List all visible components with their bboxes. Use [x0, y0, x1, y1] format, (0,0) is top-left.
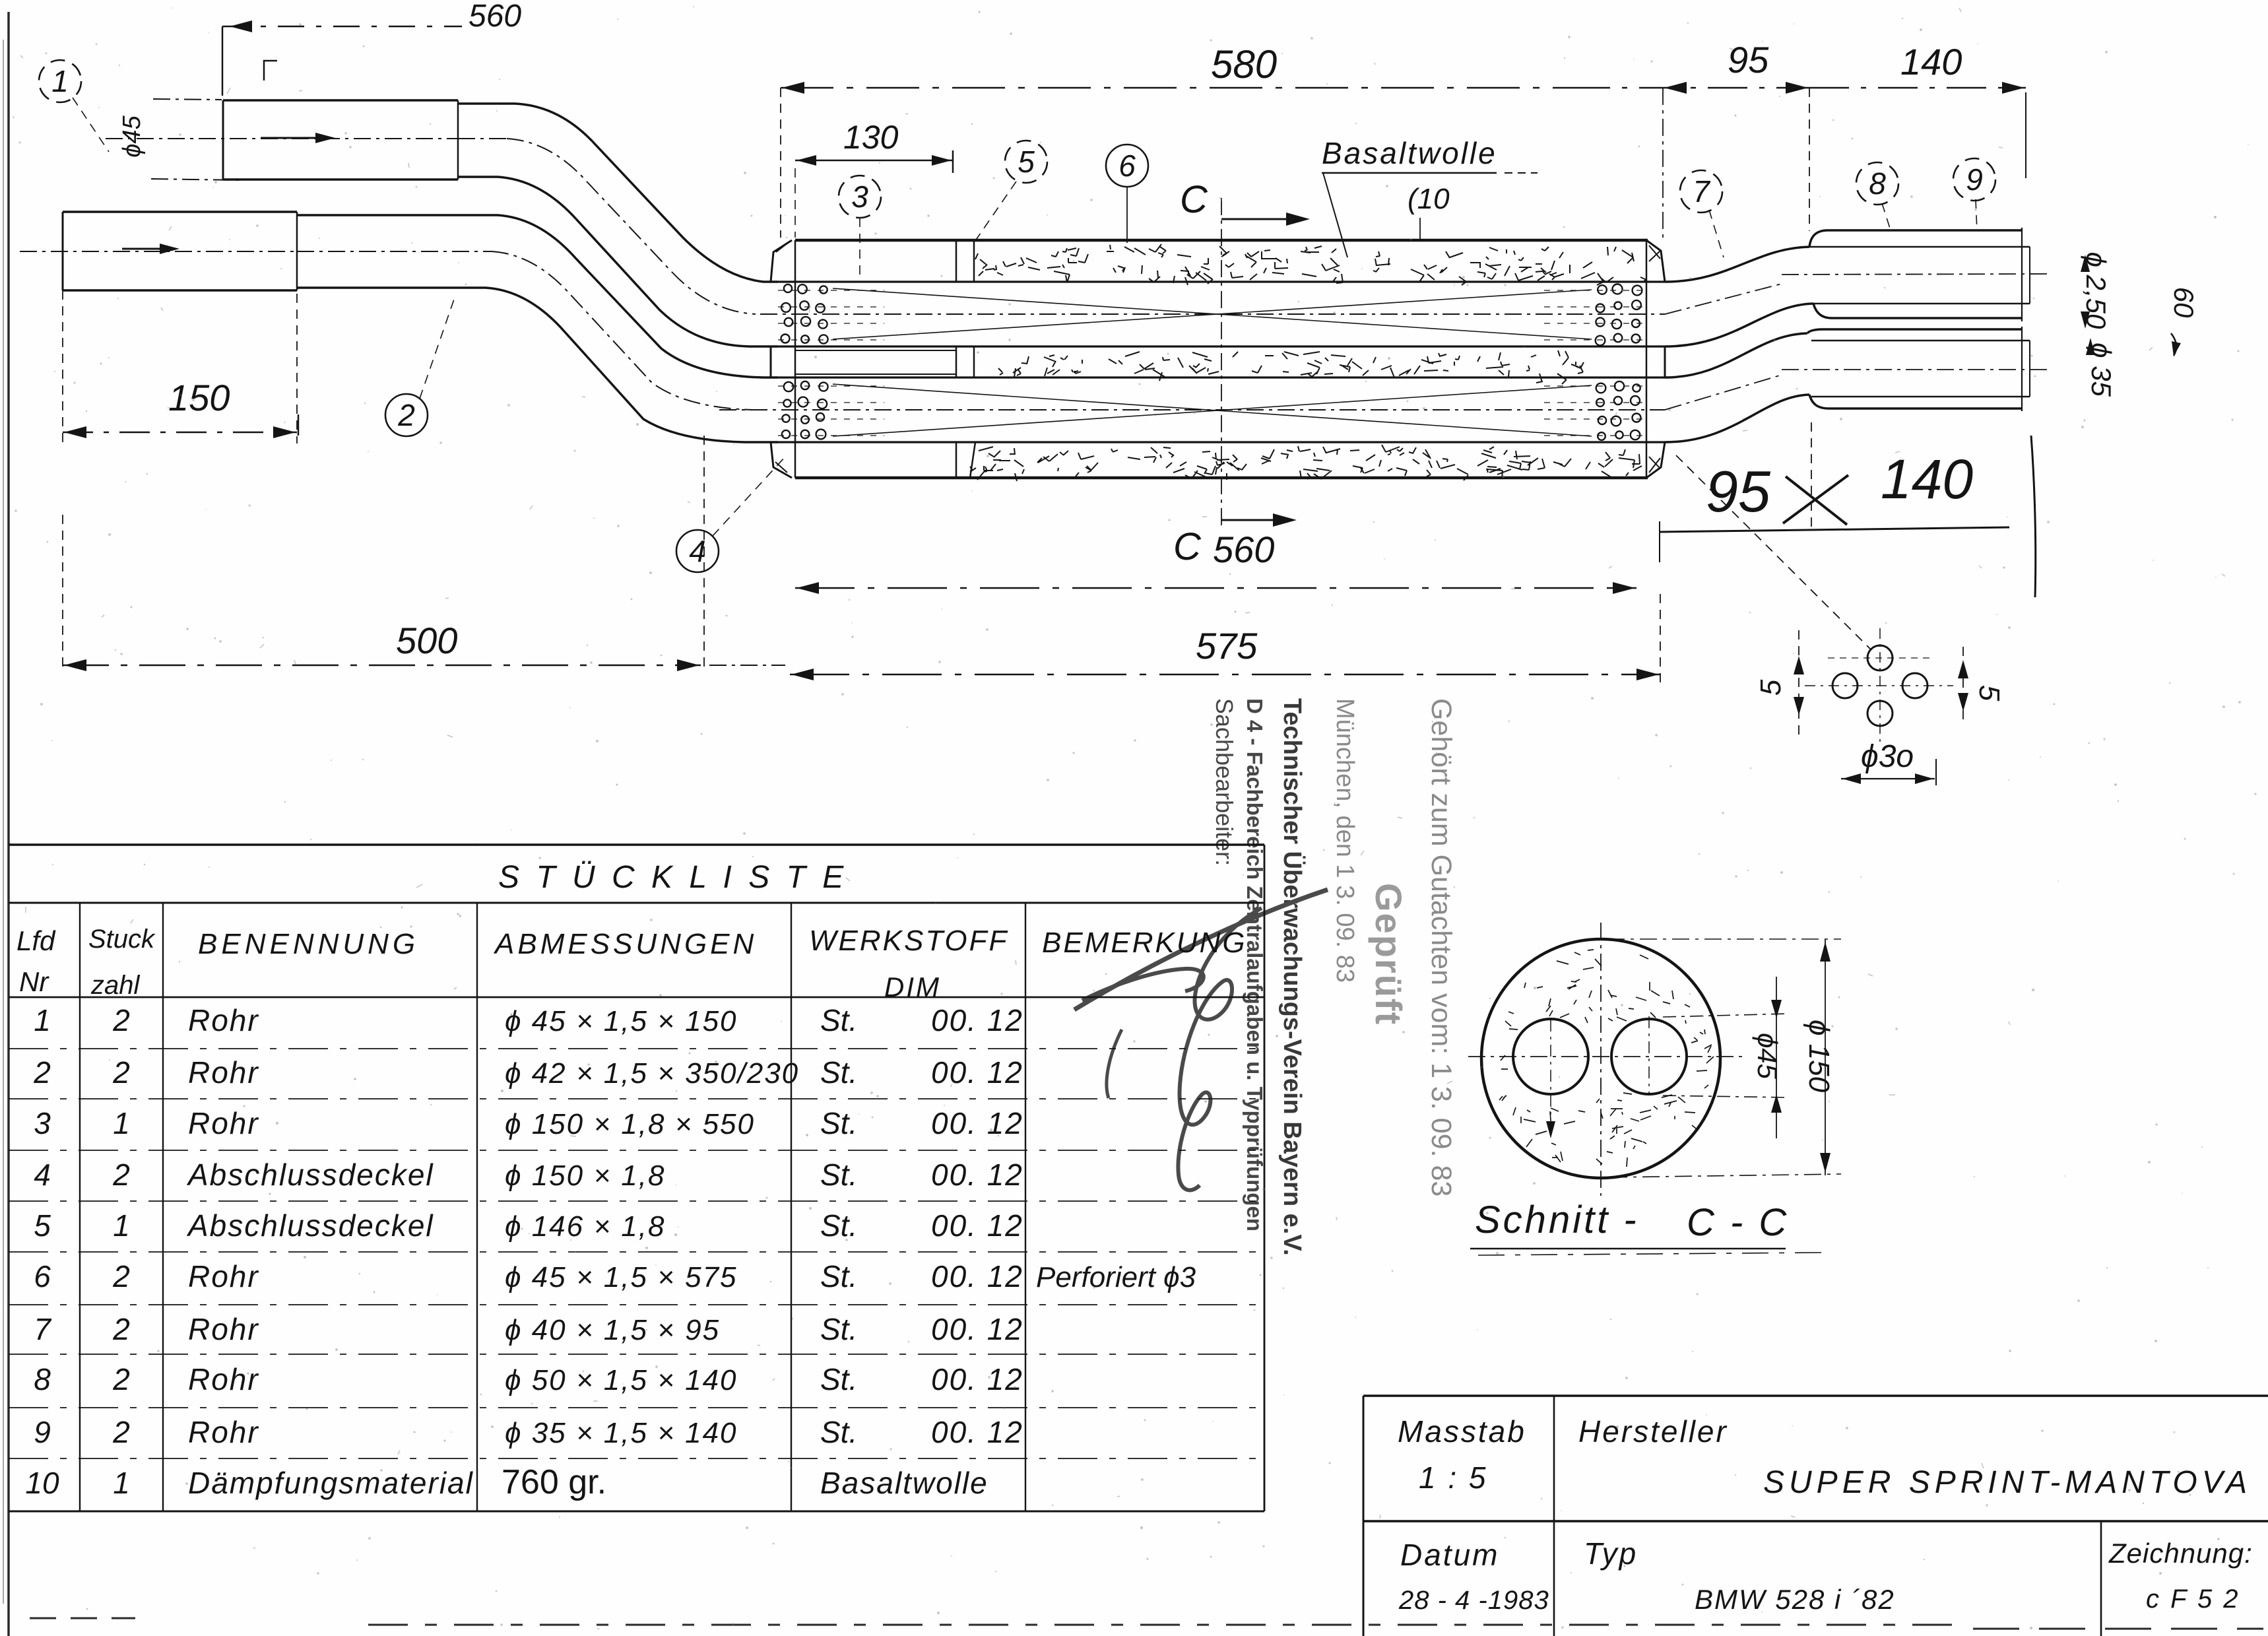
svg-text:00. 12: 00. 12 — [931, 1312, 1023, 1346]
svg-text:c F 5 2: c F 5 2 — [2146, 1585, 2240, 1614]
svg-text:St.: St. — [820, 1312, 857, 1346]
svg-text:2: 2 — [397, 398, 415, 432]
svg-text:Lfd: Lfd — [16, 925, 56, 956]
svg-text:St.: St. — [820, 1415, 857, 1449]
svg-text:3: 3 — [851, 180, 868, 214]
svg-text:5: 5 — [1018, 145, 1035, 179]
svg-text:C: C — [1173, 525, 1202, 568]
svg-text:4: 4 — [34, 1158, 51, 1192]
svg-text:00. 12: 00. 12 — [931, 1259, 1023, 1293]
svg-text:60: 60 — [2168, 287, 2199, 318]
svg-text:2: 2 — [33, 1055, 51, 1090]
svg-text:St.: St. — [820, 1208, 857, 1243]
svg-text:BMW 528 i ´82: BMW 528 i ´82 — [1695, 1584, 1895, 1615]
svg-text:560: 560 — [1213, 529, 1274, 570]
svg-text:Rohr: Rohr — [188, 1003, 259, 1037]
svg-text:Zeichnung:: Zeichnung: — [2108, 1538, 2253, 1569]
svg-text:Perforiert ϕ3: Perforiert ϕ3 — [1036, 1261, 1196, 1293]
svg-text:ϕ 40 × 1,5 × 95: ϕ 40 × 1,5 × 95 — [505, 1314, 720, 1346]
svg-text:560: 560 — [469, 0, 521, 34]
svg-text:Datum: Datum — [1400, 1538, 1499, 1572]
svg-text:580: 580 — [1211, 42, 1277, 86]
svg-text:3: 3 — [34, 1106, 51, 1140]
svg-text:ϕ45: ϕ45 — [118, 115, 146, 157]
svg-text:ϕ 42 × 1,5 × 350/230: ϕ 42 × 1,5 × 350/230 — [505, 1057, 799, 1090]
svg-text:00. 12: 00. 12 — [931, 1208, 1023, 1243]
svg-text:9: 9 — [1966, 162, 1983, 197]
svg-text:München, den 1 3. 09. 83: München, den 1 3. 09. 83 — [1331, 698, 1359, 983]
svg-text:St.: St. — [820, 1362, 857, 1396]
svg-text:Basaltwolle: Basaltwolle — [1322, 136, 1497, 170]
svg-text:Typ: Typ — [1584, 1536, 1638, 1571]
svg-text:760 gr.: 760 gr. — [502, 1463, 606, 1501]
svg-text:10: 10 — [25, 1466, 59, 1500]
svg-text:Schnitt -: Schnitt - — [1475, 1198, 1639, 1241]
svg-text:00. 12: 00. 12 — [931, 1003, 1023, 1037]
svg-text:BEMERKUNG: BEMERKUNG — [1042, 927, 1247, 959]
svg-text:140: 140 — [1900, 41, 1962, 82]
svg-text:95: 95 — [1706, 459, 1771, 524]
svg-text:4: 4 — [689, 534, 706, 568]
svg-text:00. 12: 00. 12 — [931, 1415, 1023, 1449]
svg-text:95: 95 — [1728, 39, 1769, 81]
svg-text:8: 8 — [1869, 166, 1886, 201]
svg-text:00. 12: 00. 12 — [931, 1362, 1023, 1396]
svg-text:Masstab: Masstab — [1398, 1414, 1526, 1449]
svg-text:St.: St. — [820, 1158, 857, 1192]
svg-text:ϕ 146 × 1,8: ϕ 146 × 1,8 — [505, 1210, 665, 1243]
svg-text:ϕ 45 × 1,5 × 575: ϕ 45 × 1,5 × 575 — [505, 1261, 738, 1293]
svg-text:1: 1 — [34, 1003, 51, 1037]
svg-text:Sachbearbeiter:: Sachbearbeiter: — [1211, 698, 1238, 866]
svg-text:DIM: DIM — [884, 971, 941, 1002]
svg-text:8: 8 — [34, 1362, 51, 1396]
svg-text:2: 2 — [112, 1055, 130, 1090]
svg-text:5: 5 — [1973, 685, 2005, 702]
svg-text:Rohr: Rohr — [188, 1055, 259, 1090]
svg-text:Rohr: Rohr — [188, 1106, 259, 1140]
svg-text:5: 5 — [1755, 679, 1787, 696]
svg-text:575: 575 — [1196, 625, 1258, 667]
svg-text:St.: St. — [820, 1003, 857, 1037]
svg-text:140: 140 — [1881, 448, 1973, 510]
svg-text:00. 12: 00. 12 — [931, 1106, 1023, 1140]
svg-text:2: 2 — [112, 1362, 130, 1396]
svg-text:ϕ 150 × 1,8: ϕ 150 × 1,8 — [505, 1160, 665, 1192]
svg-text:7: 7 — [34, 1312, 51, 1346]
svg-text:Rohr: Rohr — [188, 1312, 259, 1346]
svg-text:150: 150 — [168, 377, 230, 418]
svg-text:2: 2 — [112, 1158, 130, 1192]
svg-text:00. 12: 00. 12 — [931, 1055, 1023, 1090]
svg-text:6: 6 — [34, 1259, 51, 1293]
svg-text:ϕ3o: ϕ3o — [1861, 739, 1914, 774]
svg-text:D 4 - Fachbereich Zentralaufga: D 4 - Fachbereich Zentralaufgaben u. Typ… — [1243, 698, 1267, 1231]
svg-text:Dämpfungsmaterial: Dämpfungsmaterial — [188, 1466, 474, 1500]
svg-text:St.: St. — [820, 1259, 857, 1293]
svg-text:Basaltwolle: Basaltwolle — [820, 1466, 988, 1500]
svg-text:ϕ45: ϕ45 — [1752, 1033, 1783, 1080]
svg-text:2: 2 — [112, 1312, 130, 1346]
svg-text:28 - 4 -1983: 28 - 4 -1983 — [1398, 1586, 1549, 1615]
svg-text:1: 1 — [113, 1466, 130, 1500]
svg-text:Abschlussdeckel: Abschlussdeckel — [186, 1208, 434, 1243]
svg-text:2: 2 — [112, 1003, 130, 1037]
svg-text:130: 130 — [843, 119, 899, 156]
svg-text:Hersteller: Hersteller — [1578, 1414, 1728, 1449]
svg-text:WERKSTOFF: WERKSTOFF — [809, 925, 1008, 957]
svg-text:Nr: Nr — [19, 966, 49, 997]
svg-text:5: 5 — [34, 1208, 51, 1243]
svg-text:Gehört zum Gutachten vom: 1 3: Gehört zum Gutachten vom: 1 3. 09. 83 — [1425, 698, 1457, 1196]
svg-text:C: C — [1180, 178, 1208, 221]
svg-text:zahl: zahl — [90, 971, 140, 1000]
svg-text:9: 9 — [34, 1415, 51, 1449]
svg-text:500: 500 — [396, 620, 457, 661]
svg-text:St.: St. — [820, 1106, 857, 1140]
svg-text:Rohr: Rohr — [188, 1259, 259, 1293]
svg-text:(10: (10 — [1408, 183, 1450, 215]
svg-text:ϕ 50 × 1,5 × 140: ϕ 50 × 1,5 × 140 — [505, 1364, 738, 1396]
svg-text:2: 2 — [112, 1259, 130, 1293]
svg-text:ϕ 150: ϕ 150 — [1803, 1020, 1835, 1093]
svg-text:SUPER SPRINT-MANTOVA: SUPER SPRINT-MANTOVA — [1763, 1465, 2252, 1500]
svg-text:00. 12: 00. 12 — [931, 1158, 1023, 1192]
svg-text:S T Ü C K L I S T E: S T Ü C K L I S T E — [498, 860, 847, 895]
svg-text:Geprüft: Geprüft — [1368, 883, 1409, 1026]
svg-text:ϕ 45 × 1,5 × 150: ϕ 45 × 1,5 × 150 — [505, 1005, 738, 1037]
svg-text:1: 1 — [113, 1106, 130, 1140]
svg-text:2: 2 — [112, 1415, 130, 1449]
svg-text:1: 1 — [113, 1208, 130, 1243]
svg-text:Abschlussdeckel: Abschlussdeckel — [186, 1158, 434, 1192]
svg-text:ABMESSUNGEN: ABMESSUNGEN — [493, 928, 757, 960]
svg-text:6: 6 — [1118, 148, 1136, 183]
svg-text:Rohr: Rohr — [188, 1415, 259, 1449]
svg-text:Stuck: Stuck — [88, 925, 156, 954]
svg-text:BENENNUNG: BENENNUNG — [198, 928, 419, 960]
svg-text:ϕ 35 × 1,5 × 140: ϕ 35 × 1,5 × 140 — [505, 1417, 738, 1449]
svg-text:C - C: C - C — [1687, 1201, 1789, 1244]
svg-text:7: 7 — [1693, 174, 1710, 209]
svg-text:1 : 5: 1 : 5 — [1419, 1460, 1488, 1495]
svg-text:Rohr: Rohr — [188, 1362, 259, 1396]
svg-text:St.: St. — [820, 1055, 857, 1090]
svg-text:ϕ 150 × 1,8 × 550: ϕ 150 × 1,8 × 550 — [505, 1108, 755, 1140]
svg-text:Technischer Überwachungs-Verei: Technischer Überwachungs-Verein Bayern e… — [1278, 698, 1307, 1256]
svg-text:1: 1 — [51, 64, 69, 98]
